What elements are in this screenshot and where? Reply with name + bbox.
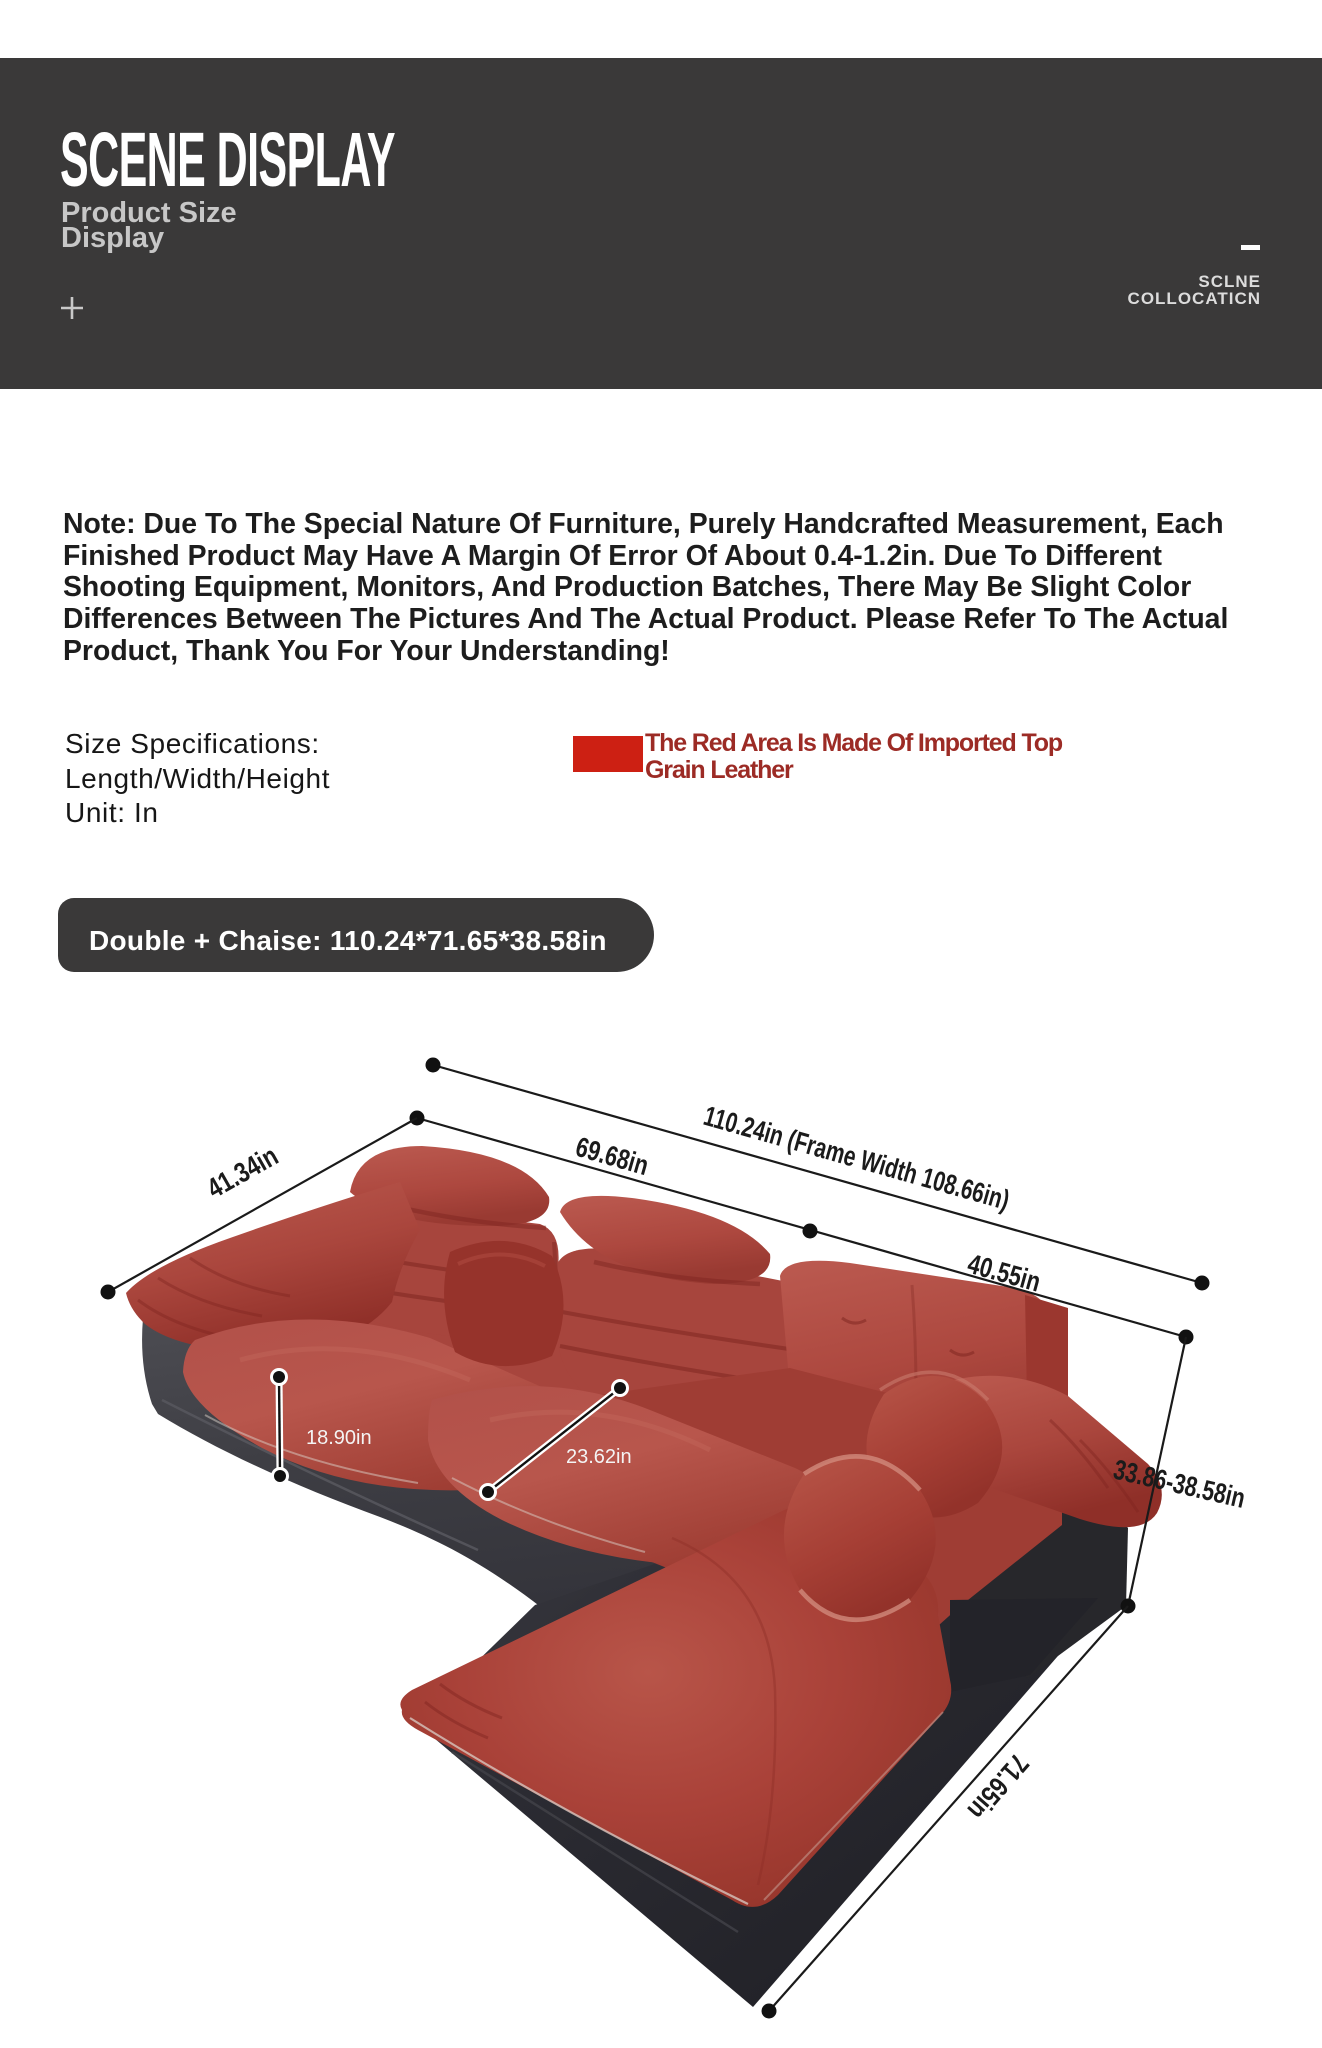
svg-text:41.34in: 41.34in [202,1140,283,1204]
svg-text:23.62in: 23.62in [566,1446,632,1468]
svg-text:18.90in: 18.90in [306,1427,372,1449]
svg-text:71.65in: 71.65in [962,1748,1035,1826]
svg-text:110.24in (Frame Width 108.66in: 110.24in (Frame Width 108.66in) [700,1100,1013,1216]
